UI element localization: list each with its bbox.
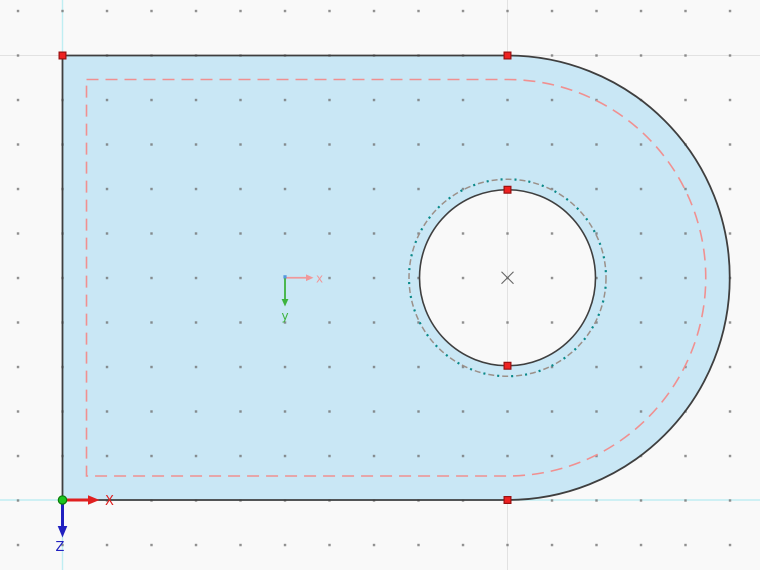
origin-point-icon [58, 496, 66, 504]
grid-dots-layer [0, 0, 760, 570]
node-marker-arc-end-bottom[interactable] [504, 497, 511, 504]
global-z-axis-label: Z [56, 540, 65, 555]
local-y-axis-label: y [281, 309, 288, 323]
node-marker-opening-bottom[interactable] [504, 362, 511, 369]
drawing-canvas[interactable]: x y X Z [0, 0, 760, 570]
node-marker-opening-top[interactable] [504, 186, 511, 193]
cad-viewport[interactable]: x y X Z [0, 0, 760, 570]
node-marker-arc-start-top[interactable] [504, 52, 511, 59]
node-marker-corner-top-left[interactable] [59, 52, 66, 59]
global-x-axis-label: X [105, 494, 114, 509]
local-origin-mark [283, 275, 286, 278]
local-x-axis-label: x [316, 272, 323, 286]
